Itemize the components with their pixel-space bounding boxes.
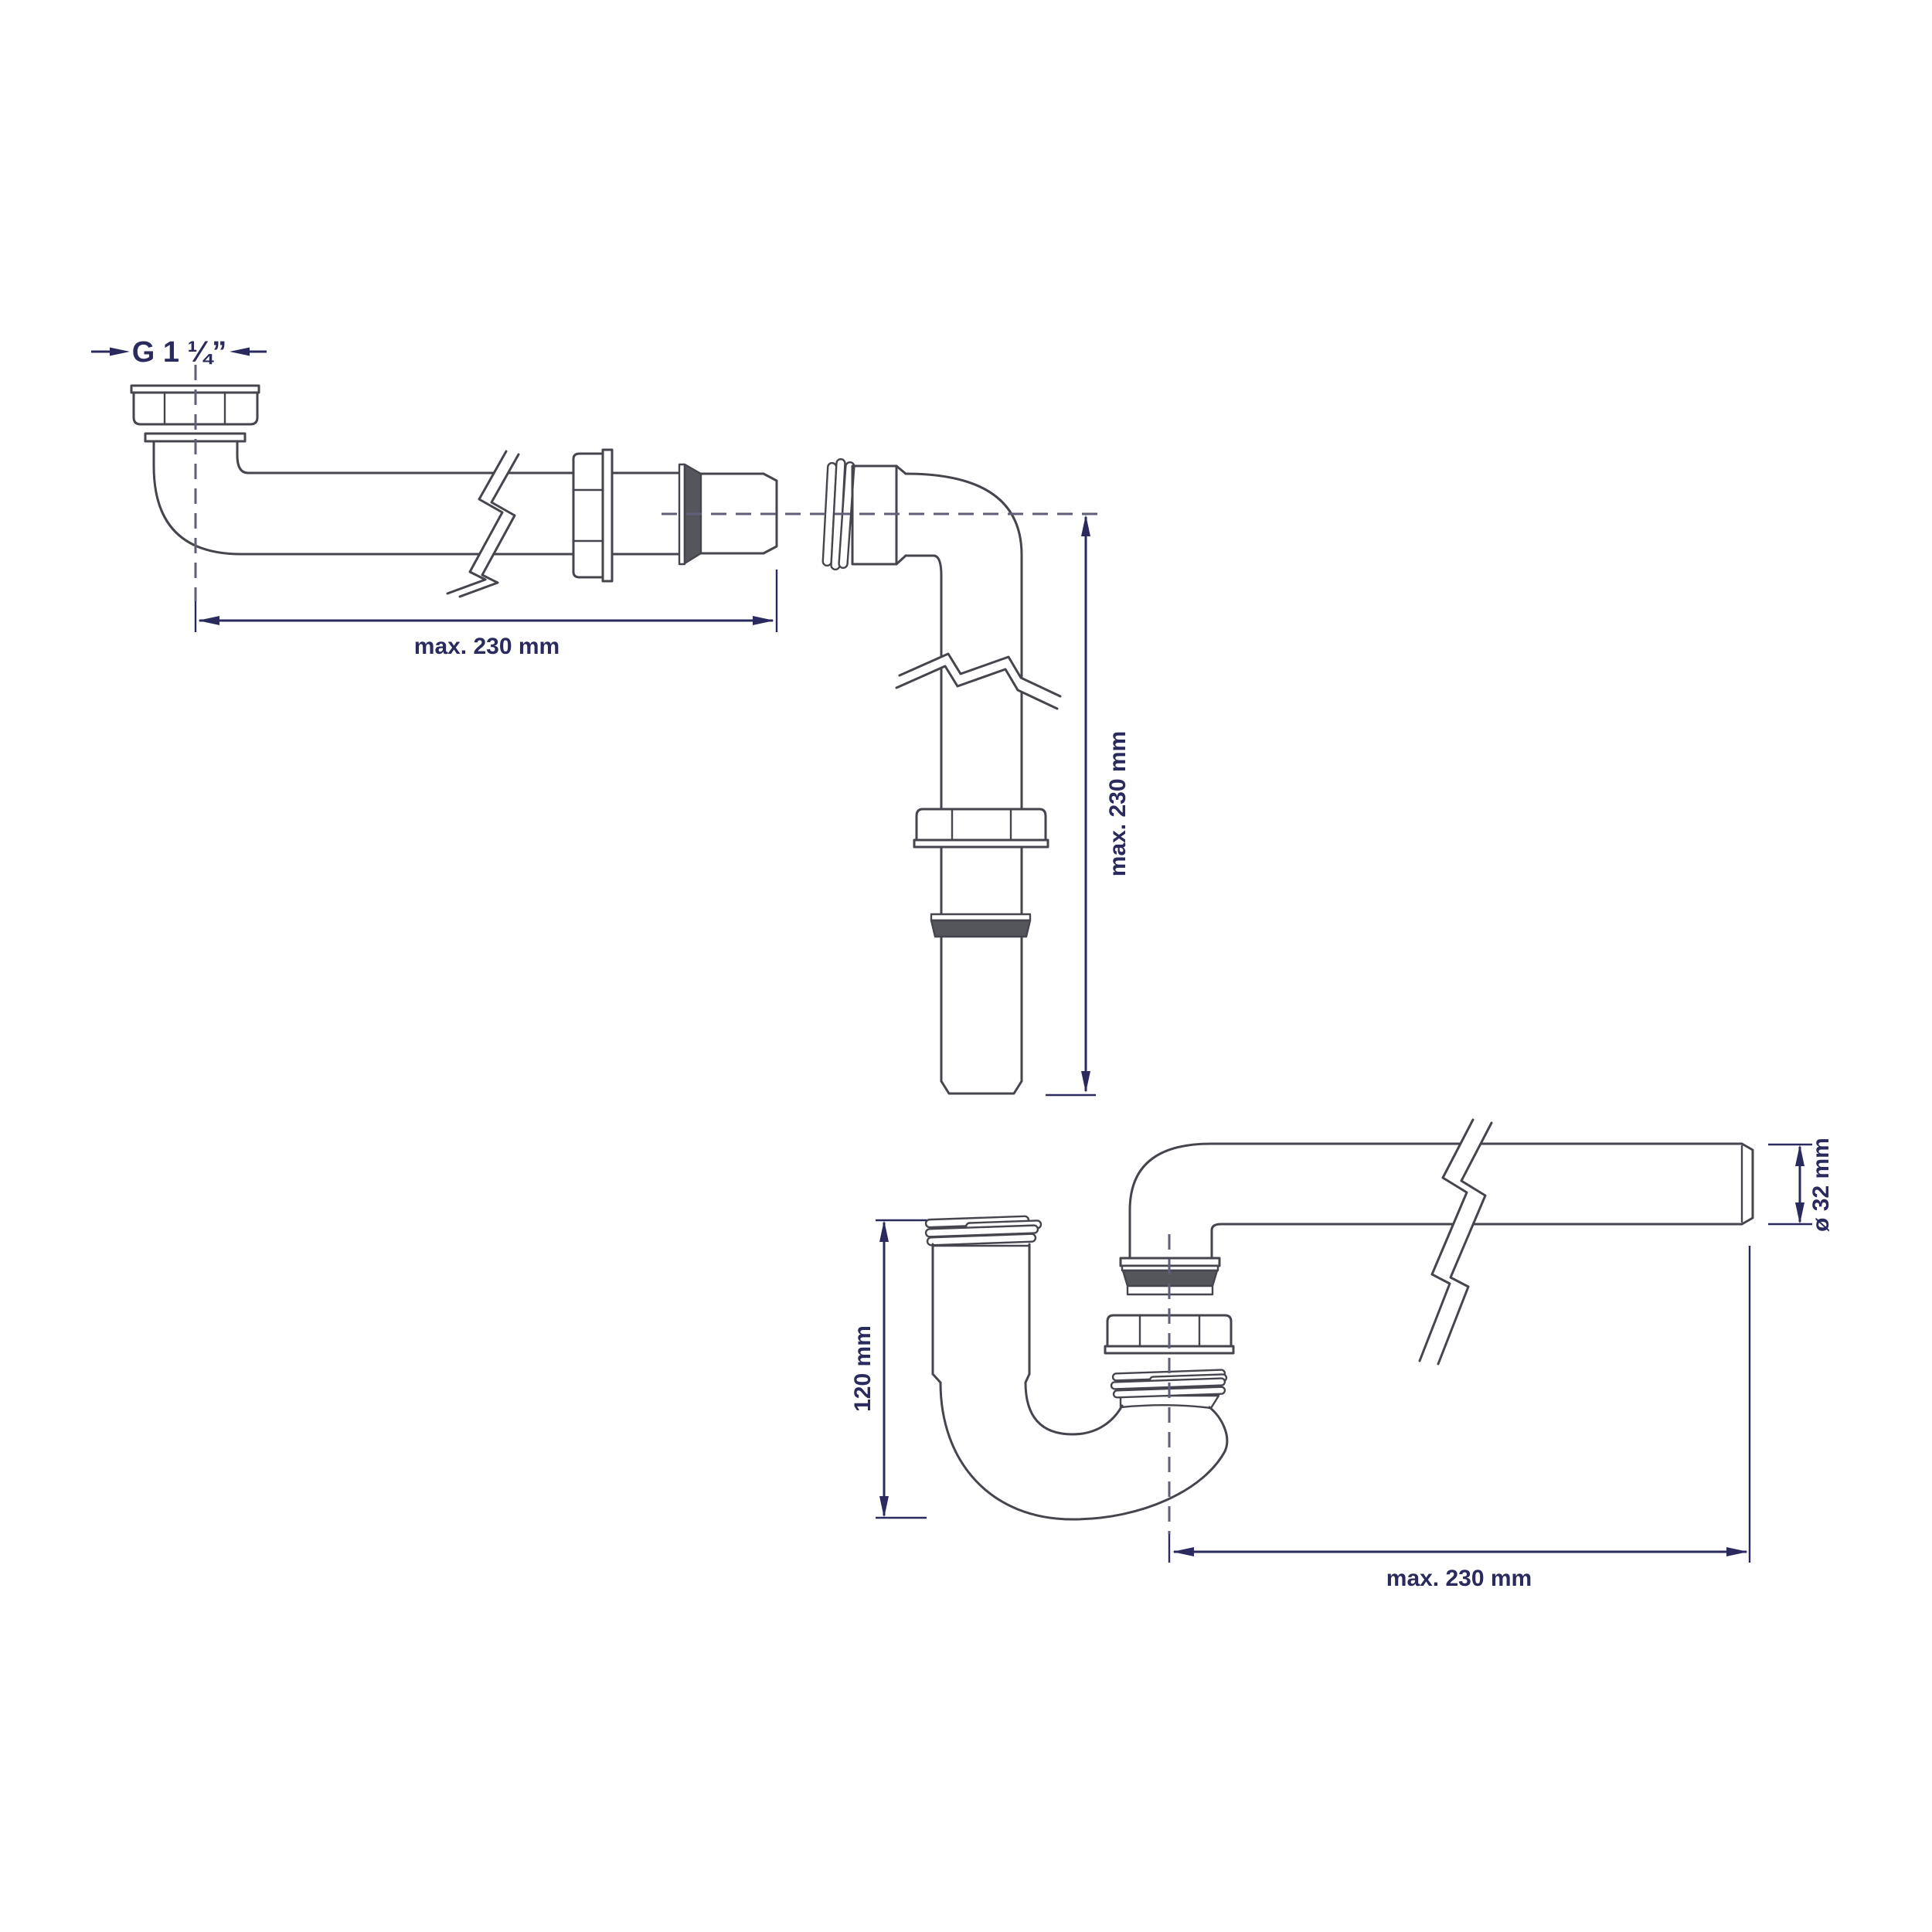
arrowhead (198, 616, 219, 625)
thread-arrow-right-head (230, 348, 250, 356)
break-line-2 (460, 454, 519, 597)
standpipe-elbow-assembly (823, 459, 1060, 1094)
standpipe-nut-washer (914, 840, 1048, 847)
standpipe-lower (941, 937, 1022, 1081)
elbow-inner-edge (1212, 1224, 1221, 1258)
arrowhead (1795, 1202, 1804, 1224)
inlet-taper (933, 1374, 1029, 1383)
dimensions: G 1 ¼” max. 230 mm max. 230 mm 120 mm ø … (91, 336, 1834, 1591)
dim-diameter-label: ø 32 mm (1808, 1138, 1834, 1232)
drawing-sheet: G 1 ¼” max. 230 mm max. 230 mm 120 mm ø … (0, 0, 1932, 1932)
arrowhead (1172, 1547, 1194, 1556)
dim-vertical-label: max. 230 mm (1105, 731, 1131, 876)
tube-nut-washer (603, 450, 612, 581)
thread-size-label: G 1 ¼” (132, 336, 227, 369)
arrowhead (753, 616, 774, 625)
u-bend-outer (940, 1383, 1227, 1519)
arrowhead (1081, 515, 1090, 536)
tube-segment (701, 474, 764, 553)
p-trap-assembly (926, 1120, 1753, 1519)
break-mask (1420, 1120, 1492, 1364)
tailpiece-assembly (131, 386, 777, 597)
break-mask (896, 654, 1060, 709)
arrowhead (879, 1496, 889, 1518)
arrowhead (1081, 1071, 1090, 1093)
extension-line (1768, 1145, 1812, 1224)
standpipe-end-chamfer (941, 1081, 1022, 1094)
u-bend-inner (1026, 1383, 1122, 1434)
cone-seal-gasket (931, 920, 1030, 937)
outlet-pipe-end (1742, 1144, 1753, 1224)
inlet-tube (933, 1244, 1029, 1374)
dim-top-label: max. 230 mm (414, 634, 560, 659)
dim-trap-height-label: 120 mm (850, 1325, 876, 1412)
elbow-outer-edge (906, 474, 1022, 809)
arrowhead (1795, 1145, 1804, 1166)
arrowhead (1726, 1547, 1748, 1556)
dim-bottom-label: max. 230 mm (1386, 1566, 1532, 1591)
arrowhead (879, 1220, 889, 1242)
standpipe-upper (941, 847, 1022, 914)
standpipe-nut-body (917, 809, 1046, 840)
tube-nut-body (573, 454, 603, 577)
technical-drawing-canvas: G 1 ¼” max. 230 mm max. 230 mm 120 mm ø … (0, 0, 1932, 1932)
thread-arrow-left-head (110, 348, 130, 356)
